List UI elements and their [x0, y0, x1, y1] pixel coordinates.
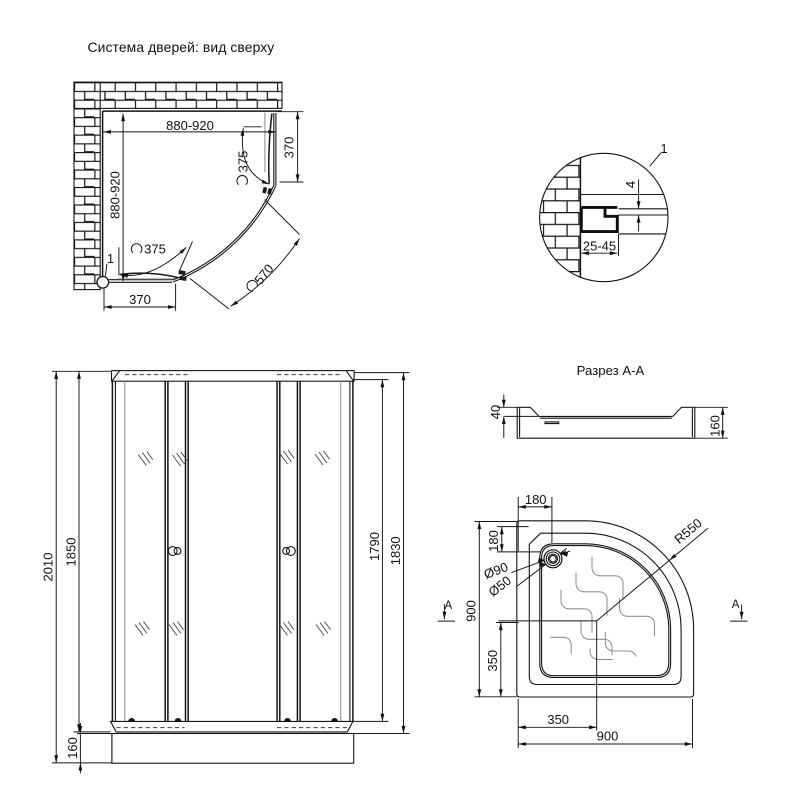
- svg-text:160: 160: [707, 415, 722, 437]
- svg-text:350: 350: [485, 650, 500, 672]
- svg-text:Система дверей: вид сверху: Система дверей: вид сверху: [88, 39, 275, 55]
- svg-text:880-920: 880-920: [166, 118, 214, 133]
- svg-text:370: 370: [129, 292, 151, 307]
- svg-text:375: 375: [144, 242, 166, 257]
- svg-text:40: 40: [488, 405, 503, 419]
- svg-text:1: 1: [660, 141, 667, 156]
- svg-text:160: 160: [65, 737, 80, 759]
- svg-text:880-920: 880-920: [107, 171, 122, 219]
- svg-text:900: 900: [464, 600, 479, 622]
- svg-text:A: A: [444, 600, 452, 612]
- svg-text:1790: 1790: [367, 532, 382, 561]
- svg-text:180: 180: [486, 530, 501, 552]
- svg-text:4: 4: [623, 181, 638, 188]
- svg-text:1: 1: [107, 251, 114, 266]
- svg-text:370: 370: [282, 137, 297, 159]
- svg-text:900: 900: [597, 729, 619, 744]
- svg-text:180: 180: [525, 492, 547, 507]
- svg-text:350: 350: [547, 712, 569, 727]
- svg-text:A: A: [732, 599, 740, 611]
- svg-text:2010: 2010: [41, 553, 56, 582]
- svg-text:375: 375: [235, 151, 250, 173]
- svg-text:1850: 1850: [63, 538, 78, 567]
- svg-text:25-45: 25-45: [583, 238, 616, 253]
- svg-text:Разрез А-А: Разрез А-А: [577, 363, 645, 378]
- svg-text:1830: 1830: [388, 536, 403, 565]
